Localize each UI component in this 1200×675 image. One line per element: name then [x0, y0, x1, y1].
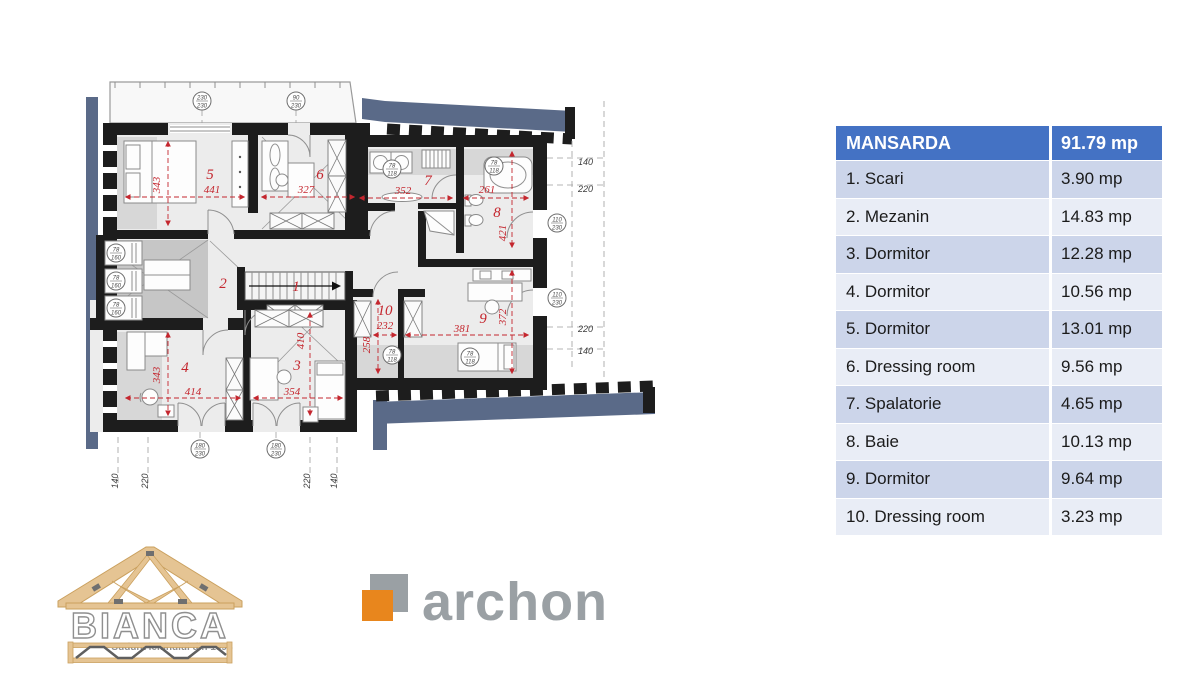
table-row: 2. Mezanin14.83 mp	[836, 198, 1162, 236]
svg-text:78: 78	[113, 248, 120, 254]
bianca-logo: BIANCA Sudura lemnului din 1994	[50, 543, 250, 665]
svg-text:352: 352	[394, 185, 412, 197]
svg-text:230: 230	[194, 452, 206, 458]
svg-text:78: 78	[389, 164, 396, 170]
area-table-header: MANSARDA 91.79 mp	[836, 126, 1162, 160]
table-row: 1. Scari3.90 mp	[836, 160, 1162, 198]
table-row: 3. Dormitor12.28 mp	[836, 235, 1162, 273]
svg-text:381: 381	[453, 323, 471, 335]
svg-text:414: 414	[185, 386, 202, 398]
room-5-number: 5	[206, 167, 214, 183]
svg-text:421: 421	[497, 225, 509, 242]
svg-text:327: 327	[297, 184, 315, 196]
total-area: 91.79 mp	[1049, 126, 1162, 160]
table-row: 7. Spalatorie4.65 mp	[836, 385, 1162, 423]
table-row: 4. Dormitor10.56 mp	[836, 273, 1162, 311]
area-table: MANSARDA 91.79 mp 1. Scari3.90 mp 2. Mez…	[836, 126, 1162, 535]
page: { "floorplan": { "title": "Mansarda floo…	[0, 0, 1200, 675]
svg-text:160: 160	[111, 256, 122, 262]
svg-text:180: 180	[195, 444, 206, 450]
svg-text:410: 410	[295, 332, 307, 349]
table-row: 10. Dressing room3.23 mp	[836, 498, 1162, 536]
svg-text:140: 140	[110, 473, 120, 488]
terrace	[110, 82, 356, 123]
room-4-number: 4	[181, 360, 189, 376]
svg-text:343: 343	[151, 366, 163, 384]
room-9-number: 9	[479, 311, 487, 327]
archon-orange-square	[362, 590, 393, 621]
svg-text:78: 78	[491, 161, 498, 167]
svg-text:230: 230	[196, 104, 208, 110]
archon-mark	[362, 574, 412, 630]
svg-text:230: 230	[290, 104, 302, 110]
svg-text:160: 160	[111, 284, 122, 290]
table-row: 6. Dressing room9.56 mp	[836, 348, 1162, 386]
svg-text:78: 78	[113, 276, 120, 282]
svg-text:78: 78	[113, 303, 120, 309]
svg-text:441: 441	[204, 184, 221, 196]
svg-text:220: 220	[577, 324, 593, 334]
archon-logo: archon	[362, 574, 608, 630]
svg-text:118: 118	[465, 360, 475, 366]
room-3-number: 3	[292, 358, 301, 374]
svg-text:261: 261	[479, 184, 496, 196]
svg-text:118: 118	[387, 358, 397, 364]
svg-text:140: 140	[578, 346, 593, 356]
svg-text:354: 354	[283, 386, 301, 398]
svg-text:140: 140	[329, 473, 339, 488]
svg-text:160: 160	[111, 311, 122, 317]
svg-text:110: 110	[552, 218, 562, 224]
floorplan: 1 2 3 354 410 4 414 343 5 441 343 6 327 …	[60, 45, 660, 515]
svg-text:220: 220	[577, 184, 593, 194]
table-row: 9. Dormitor9.64 mp	[836, 460, 1162, 498]
svg-text:140: 140	[578, 157, 593, 167]
svg-text:230: 230	[551, 226, 563, 232]
svg-text:220: 220	[140, 473, 150, 489]
svg-text:372: 372	[497, 308, 509, 326]
room-6-number: 6	[316, 167, 324, 183]
room-1-number: 1	[292, 279, 300, 295]
svg-text:118: 118	[489, 169, 499, 175]
svg-text:230: 230	[196, 96, 208, 102]
table-row: 5. Dormitor13.01 mp	[836, 310, 1162, 348]
svg-text:118: 118	[387, 172, 397, 178]
svg-text:78: 78	[389, 350, 396, 356]
svg-text:220: 220	[302, 473, 312, 489]
svg-text:180: 180	[271, 444, 282, 450]
svg-text:230: 230	[270, 452, 282, 458]
table-row: 8. Baie10.13 mp	[836, 423, 1162, 461]
room-10-number: 10	[378, 303, 394, 319]
floor-title: MANSARDA	[836, 133, 1049, 154]
svg-text:232: 232	[377, 320, 394, 332]
mezzanine-table	[144, 260, 190, 290]
svg-text:78: 78	[467, 352, 474, 358]
svg-text:90: 90	[293, 96, 300, 102]
bianca-wordmark: BIANCA	[71, 605, 229, 646]
archon-wordmark: archon	[422, 574, 608, 630]
svg-text:230: 230	[551, 301, 563, 307]
room-2-number: 2	[219, 276, 227, 292]
svg-text:343: 343	[151, 176, 163, 194]
room-8-number: 8	[493, 205, 501, 221]
svg-text:110: 110	[552, 293, 562, 299]
svg-text:258: 258	[361, 336, 373, 353]
